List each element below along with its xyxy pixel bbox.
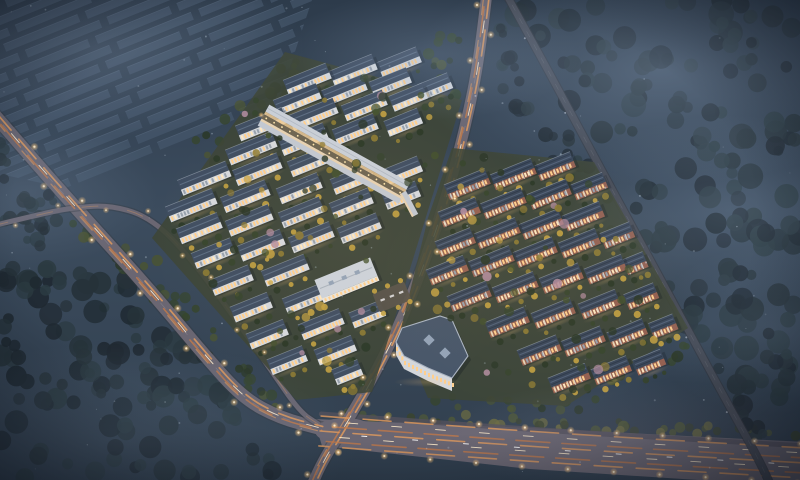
vignette-overlay xyxy=(0,0,800,480)
night-aerial-rendering xyxy=(0,0,800,480)
aerial-render-viewport xyxy=(0,0,800,480)
